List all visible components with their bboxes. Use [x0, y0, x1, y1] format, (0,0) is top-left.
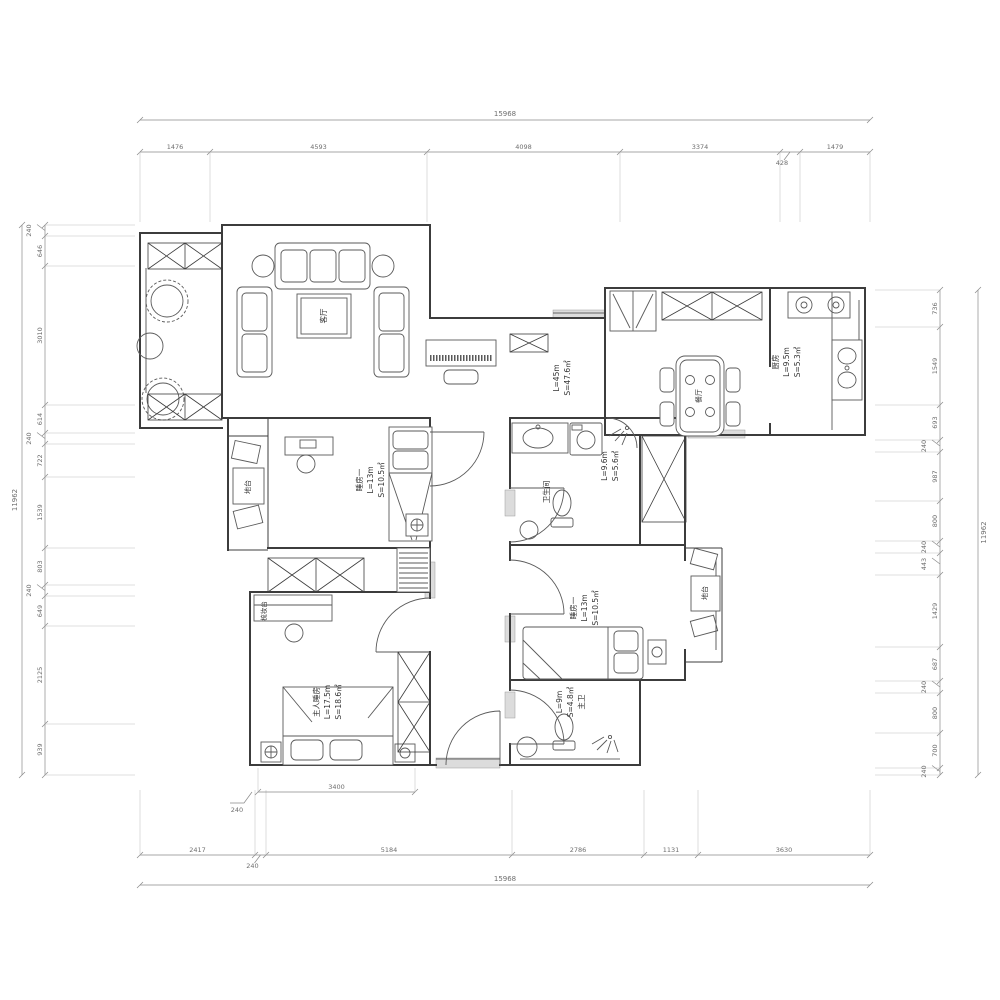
dim-label: 240 [246, 862, 258, 870]
room-label: S=4.8㎡ [566, 686, 575, 717]
dim-label: 240 [25, 224, 33, 236]
shoe-cabinet-icon [397, 548, 430, 592]
room-label: 厨房 [770, 355, 780, 370]
dim-label: 700 [931, 744, 939, 756]
dim-label: 4098 [515, 143, 532, 151]
floor-plan-canvas: 1596814764593409833744281479159682417240… [0, 0, 1000, 1000]
dining-chair-icon [660, 402, 674, 426]
dim-label: 614 [36, 413, 44, 425]
dim-label: 443 [920, 558, 928, 570]
dim-label: 649 [36, 605, 44, 617]
round-chair-back [146, 280, 188, 322]
dim-label: 2125 [36, 667, 44, 684]
round-chair-icon [147, 383, 179, 415]
wardrobe-x-mark [185, 394, 222, 420]
dim-leader [37, 585, 45, 591]
shower-head-icon [608, 735, 611, 738]
side-table-icon [372, 255, 394, 277]
round-chair-icon [151, 285, 183, 317]
foyer-furniture [426, 340, 496, 384]
room-label: S=10.5㎡ [591, 590, 600, 626]
room-label: L=13m [580, 594, 589, 621]
dim-label: 1479 [827, 143, 844, 151]
dining-chair-icon [660, 368, 674, 392]
wall-hatch [505, 490, 515, 516]
overall-dim-label: 15968 [494, 875, 516, 883]
room-label: 餐厅 [694, 389, 703, 403]
dim-label: 240 [920, 440, 928, 452]
dresser-stool-icon [285, 624, 303, 642]
washing-machine-icon [570, 423, 602, 455]
overall-dim-label: 15968 [494, 110, 516, 118]
shower-spray-lines [592, 737, 618, 753]
dim-label: 803 [36, 560, 44, 572]
dim-label: 800 [931, 515, 939, 527]
dim-label: 939 [36, 743, 44, 755]
balcony-furniture [137, 280, 188, 420]
dim-label: 428 [776, 159, 788, 167]
wardrobe-x-mark [712, 292, 762, 320]
dim-label: 3374 [692, 143, 709, 151]
wardrobe-x-mark [642, 436, 686, 522]
room-label: L=17.5m [323, 685, 332, 719]
cushion-icon [233, 505, 263, 529]
dim-label: 240 [920, 541, 928, 553]
room-label: 卫生间 [541, 481, 551, 504]
nightstand-icon [648, 640, 666, 664]
door-swing-icon [510, 560, 564, 614]
dim-label: 240 [231, 806, 243, 814]
wardrobe-x-mark [148, 243, 185, 269]
room-label: 主人睡房 [311, 687, 321, 717]
dim-label: 722 [36, 454, 44, 466]
dining-chair-icon [726, 368, 740, 392]
floor-plan-drawing: 1596814764593409833744281479159682417240… [0, 0, 1000, 1000]
room-label: 睡房一 [354, 468, 364, 491]
dim-leader [37, 433, 45, 439]
dim-label: 4593 [310, 143, 327, 151]
dim-label: 1476 [167, 143, 184, 151]
dim-leader [932, 766, 940, 772]
wardrobe-x-mark [316, 558, 364, 592]
dim-label: 1549 [931, 358, 939, 375]
dim-label: 2417 [189, 846, 206, 854]
wardrobe-x-mark [510, 334, 548, 352]
room-label: L=13m [366, 466, 375, 493]
room-label: S=10.5㎡ [377, 462, 386, 498]
dining-chair-icon [726, 402, 740, 426]
door-swing-icon [430, 432, 484, 486]
overall-dim-label: 11962 [980, 521, 988, 543]
dim-label: 800 [931, 707, 939, 719]
dim-label: 1429 [931, 603, 939, 620]
room-label: L=9.6m [600, 451, 609, 481]
dim-label: 240 [25, 432, 33, 444]
dim-leader [230, 792, 252, 803]
wardrobe-x-mark [148, 394, 185, 420]
dim-label: 3400 [328, 783, 345, 791]
room-label: 梳妆台 [259, 601, 268, 621]
shower-spray-lines [609, 429, 627, 445]
room-label: S=18.6㎡ [334, 684, 343, 720]
wardrobe-x-mark [662, 292, 712, 320]
cushion-icon [231, 440, 260, 463]
pedestal-basin-icon [517, 737, 537, 757]
cushion-icon [690, 615, 717, 637]
wardrobe-x-mark [268, 558, 316, 592]
wardrobe-x-mark [185, 243, 222, 269]
master-bath-furniture [510, 690, 618, 757]
bedroom1-furniture [231, 427, 432, 541]
room-label: S=5.3㎡ [793, 346, 802, 377]
dim-label: 240 [25, 584, 33, 596]
dim-label: 736 [931, 302, 939, 314]
dim-leader [932, 558, 940, 564]
room-label: 地台 [700, 586, 709, 600]
side-table-icon [252, 255, 274, 277]
entry-door [446, 711, 500, 765]
dim-label: 687 [931, 658, 939, 670]
piano-icon [426, 340, 496, 366]
room-label: L=45m [552, 364, 561, 391]
stove-icon [788, 292, 850, 318]
dim-label: 693 [931, 416, 939, 428]
dim-leader [37, 225, 45, 231]
room-label: 睡房一 [568, 596, 578, 619]
wall-hatch [505, 692, 515, 718]
room-label: L=9.5m [782, 347, 791, 377]
dim-label: 3630 [776, 846, 793, 854]
wardrobe-x-mark [398, 652, 430, 702]
dim-label: 240 [920, 681, 928, 693]
room-label: L=9m [555, 691, 564, 714]
room-label: S=5.6㎡ [611, 450, 620, 481]
shower-head-icon [625, 426, 628, 429]
dim-label: 240 [920, 765, 928, 777]
room-label: S=47.6㎡ [563, 360, 572, 396]
overall-dim-label: 11962 [11, 489, 19, 511]
dim-label: 1539 [36, 504, 44, 521]
dim-label: 646 [36, 245, 44, 257]
dim-label: 987 [931, 470, 939, 482]
window-hatch [553, 310, 605, 318]
dim-label: 3010 [36, 327, 44, 344]
room-label: 客厅 [318, 308, 328, 323]
piano-bench-icon [444, 370, 478, 384]
dim-label: 2786 [570, 846, 587, 854]
dim-label: 1131 [663, 846, 680, 854]
desk-chair-icon [297, 455, 315, 473]
bedroom2-furniture [510, 548, 720, 679]
door-swing-icon [376, 598, 430, 652]
room-label: 地台 [243, 480, 252, 494]
cushion-icon [690, 548, 717, 570]
room-label: 主卫 [576, 694, 586, 709]
door-swing-icon [446, 711, 500, 765]
dim-label: 5184 [381, 846, 398, 854]
